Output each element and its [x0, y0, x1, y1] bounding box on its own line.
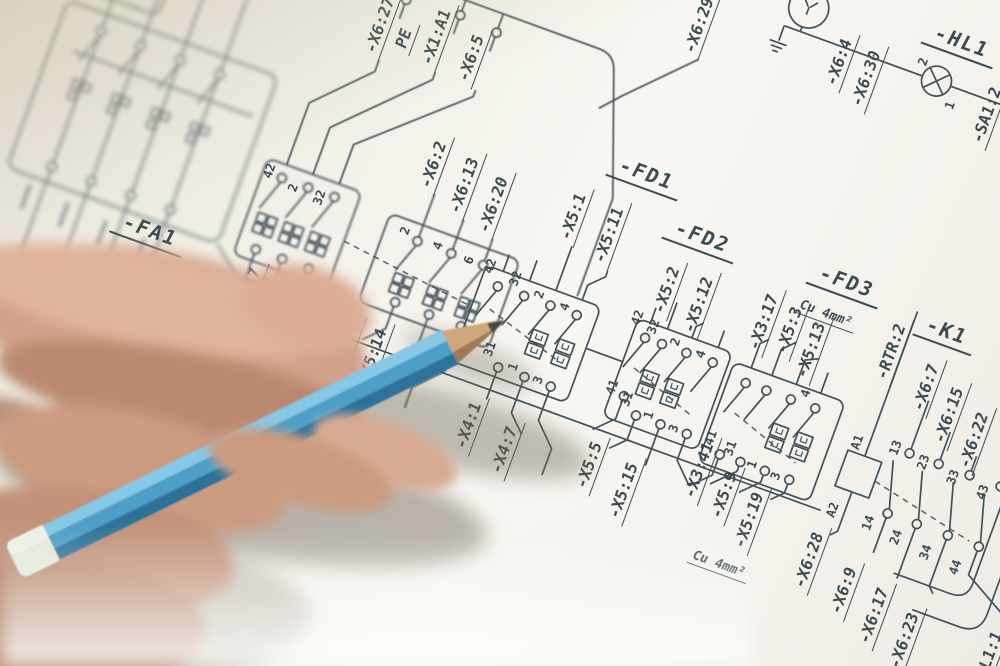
photo-of-wiring-diagram: -FA1-FA2-FD1-FD2-FD3-K1-HL1Cu 4mm²Cu 4mm… — [0, 0, 1000, 666]
foreground — [0, 0, 1000, 666]
